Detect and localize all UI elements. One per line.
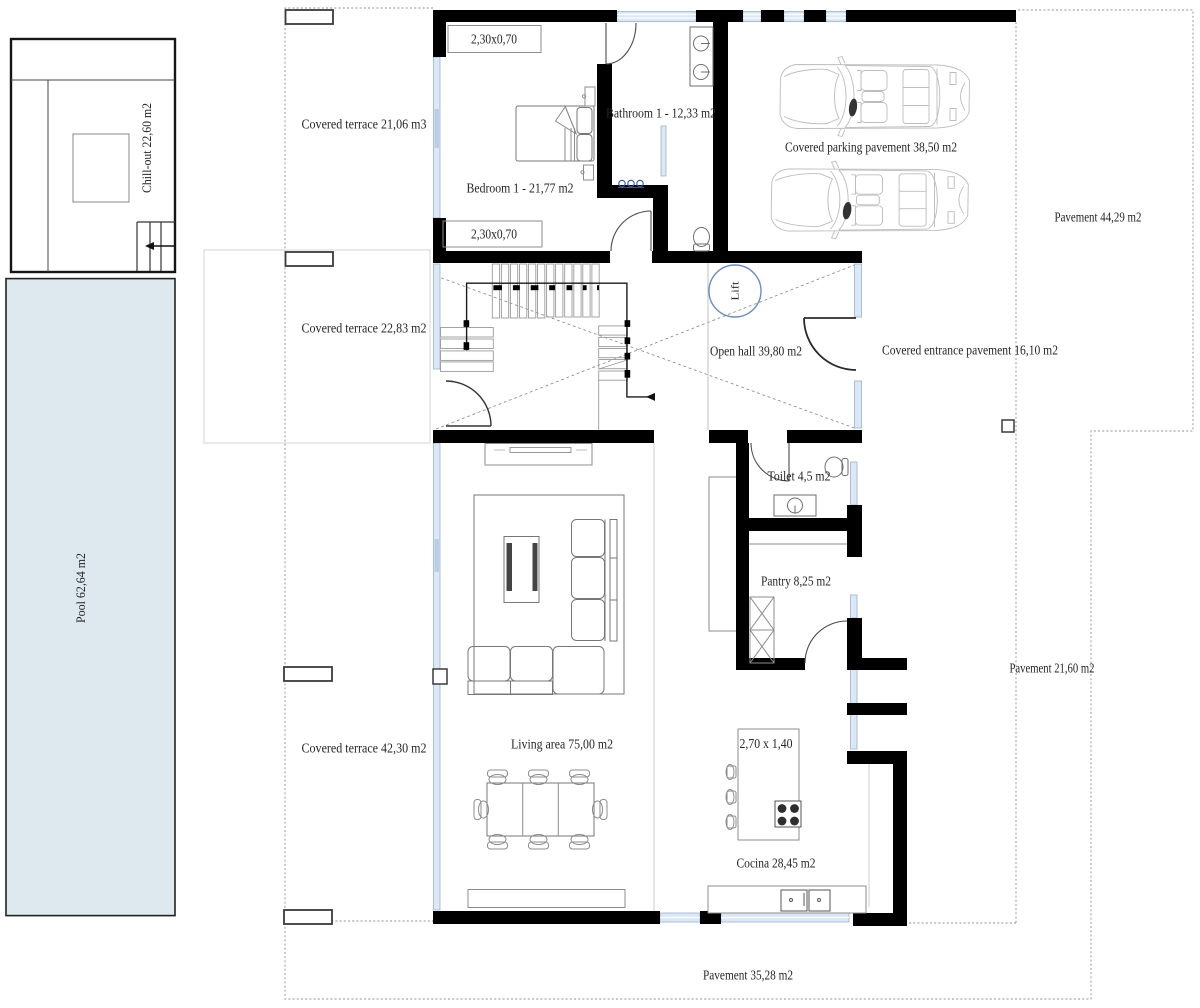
svg-text:Living area 75,00 m2: Living area 75,00 m2: [511, 737, 613, 752]
svg-text:Toilet 4,5 m2: Toilet 4,5 m2: [768, 469, 831, 484]
svg-text:Lift: Lift: [731, 281, 742, 300]
svg-text:Bathroom 1 - 12,33 m2: Bathroom 1 - 12,33 m2: [606, 106, 716, 121]
svg-text:Pool 62,64 m2: Pool 62,64 m2: [73, 553, 88, 623]
svg-text:Pavement 21,60 m2: Pavement 21,60 m2: [1010, 661, 1095, 676]
svg-text:2,70 x 1,40: 2,70 x 1,40: [740, 736, 793, 751]
svg-text:2,30x0,70: 2,30x0,70: [471, 31, 517, 46]
svg-text:Covered terrace 21,06 m3: Covered terrace 21,06 m3: [302, 118, 427, 133]
svg-text:Covered entrance pavement 16,1: Covered entrance pavement 16,10 m2: [882, 344, 1058, 359]
svg-text:Cocina 28,45 m2: Cocina 28,45 m2: [737, 856, 816, 871]
svg-text:Bedroom 1 - 21,77 m2: Bedroom 1 - 21,77 m2: [467, 181, 574, 196]
svg-text:Pantry 8,25 m2: Pantry 8,25 m2: [761, 574, 831, 589]
svg-text:Pavement 44,29 m2: Pavement 44,29 m2: [1055, 210, 1142, 225]
svg-text:Covered terrace 22,83 m2: Covered terrace 22,83 m2: [302, 321, 427, 336]
svg-text:Open hall 39,80 m2: Open hall 39,80 m2: [710, 345, 802, 360]
svg-text:Chill-out 22,60 m2: Chill-out 22,60 m2: [139, 103, 154, 193]
svg-text:Covered terrace 42,30 m2: Covered terrace 42,30 m2: [302, 741, 427, 756]
svg-text:2,30x0,70: 2,30x0,70: [471, 227, 517, 242]
svg-text:Pavement 35,28 m2: Pavement 35,28 m2: [703, 968, 793, 983]
svg-text:Covered parking pavement 38,50: Covered parking pavement 38,50 m2: [785, 140, 957, 155]
